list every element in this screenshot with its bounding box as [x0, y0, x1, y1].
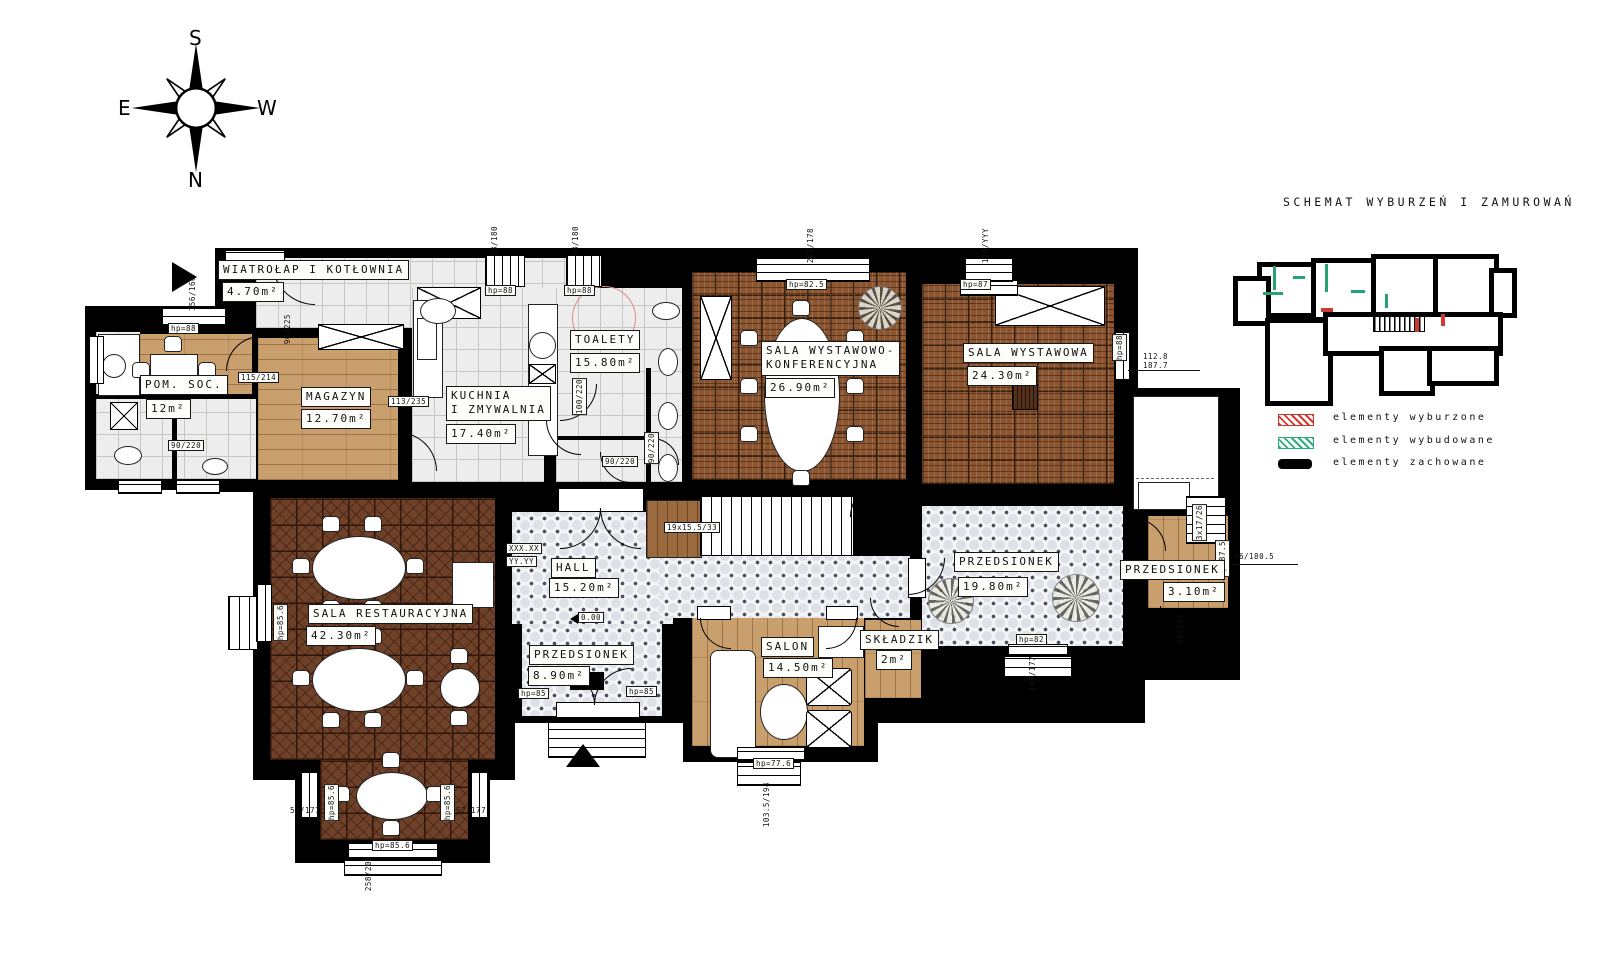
hp-label: hp=85.6 [372, 840, 413, 851]
room-label-przedsionek-310: PRZEDSIONEK [1120, 560, 1225, 580]
door-dim: 90/220 [168, 440, 204, 451]
chair [382, 752, 400, 768]
door-dim: 90/220 [602, 456, 638, 467]
dim-label: 52/177 [290, 806, 320, 815]
dim-label: 98/180 [571, 226, 580, 256]
area-label-magazyn: 12.70m² [301, 409, 371, 429]
dim-label: 98/180 [490, 226, 499, 256]
hp-label: hp=82 [1016, 634, 1047, 645]
compass-east: E [118, 96, 131, 120]
room-label-toalety: TOALETY [570, 330, 640, 350]
mini-green-mark [1325, 264, 1328, 292]
shower [110, 402, 138, 430]
chair [164, 336, 182, 352]
mini-green-mark [1293, 276, 1305, 279]
area-label-konferencyjna: 26.90m² [765, 378, 835, 398]
dining-table [312, 648, 406, 712]
entrance-arrow-icon [566, 744, 600, 767]
chair [740, 426, 758, 442]
chair [364, 516, 382, 532]
hp-label: hp=88 [564, 285, 595, 296]
door-dim: 113/235 [388, 396, 429, 407]
stove [529, 332, 556, 359]
room-label-kuchnia: KUCHNIAI ZMYWALNIA [446, 386, 551, 421]
area-label-toalety: 15.80m² [570, 353, 640, 373]
toilet [658, 402, 678, 430]
toilet [114, 446, 142, 465]
compass-west: W [257, 96, 277, 120]
legend-label-wybudowane: elementy wybudowane [1333, 435, 1495, 446]
dim-label: 187.7 [1143, 361, 1168, 370]
buffet-cabinet [452, 562, 494, 608]
area-label-pom-soc: 12m² [146, 399, 191, 419]
chair [292, 558, 310, 574]
chair [740, 378, 758, 394]
dim-label: 156/166 [188, 276, 197, 311]
kitchen-sink [417, 318, 437, 360]
mini-green-mark [1263, 292, 1283, 295]
boiler [420, 298, 456, 324]
area-label-hall: 15.20m² [549, 578, 619, 598]
hp-label: hp=85.6 [324, 784, 339, 821]
mini-room [1427, 346, 1499, 386]
stair-label: 3x17/26 [1192, 504, 1207, 541]
stair-label: 19x15.5/33 [664, 522, 720, 533]
chair [322, 712, 340, 728]
door-dim: 100/220 [572, 378, 587, 415]
main-staircase [700, 496, 854, 556]
plant [858, 286, 902, 330]
area-label-restauracyjna: 42.30m² [306, 626, 376, 646]
legend-label-wyburzone: elementy wyburzone [1333, 412, 1486, 423]
east-bench [1138, 482, 1190, 510]
area-label-przedsionek-1980: 19.80m² [958, 577, 1028, 597]
area-label-wiatrolap: 4.70m² [222, 282, 284, 302]
hp-label: hp=85.6 [440, 784, 455, 821]
mini-red-mark [1441, 314, 1445, 326]
sofa [710, 650, 756, 758]
dim-label: 258/208 [364, 856, 373, 891]
hp-label: hp=88 [168, 323, 199, 334]
legend-label-zachowane: elementy zachowane [1333, 457, 1486, 468]
toilet [202, 458, 228, 475]
dim-label: 112.8 [1143, 352, 1168, 361]
entry-steps-garden [1004, 656, 1072, 678]
room-label-przedsionek-890: PRZEDSIONEK [529, 645, 634, 665]
storage-crate [318, 324, 404, 350]
mini-red-mark [1415, 318, 1419, 332]
room-label-magazyn: MAGAZYN [301, 387, 371, 407]
bay-table [356, 772, 428, 820]
window [1008, 644, 1068, 656]
area-label-skladzik: 2m² [876, 650, 912, 670]
placeholder-dim: XXX.XX [506, 543, 542, 554]
chair [792, 470, 810, 486]
chair [450, 710, 468, 726]
hp-label: hp=88 [1112, 334, 1127, 361]
room-label-skladzik: SKŁADZIK [860, 630, 939, 650]
dim-label: 46/180.5 [1234, 552, 1274, 561]
dim-label: 52/177 [456, 806, 486, 815]
sink [102, 354, 126, 378]
window [176, 480, 220, 494]
mini-green-mark [1273, 266, 1276, 290]
room-label-restauracyjna: SALA RESTAURACYJNA [308, 604, 473, 624]
room-label-pom-soc: POM. SOC. [140, 375, 228, 395]
hp-label: hp=82.5 [786, 279, 827, 290]
area-label-salon: 14.50m² [763, 658, 833, 678]
door-dim: 90/225 [283, 314, 292, 344]
door-dim: 80/202 [1176, 614, 1185, 644]
dim-label: 106/177 [1028, 656, 1037, 691]
schematic-mini-plan [1233, 252, 1529, 402]
appliance [529, 364, 556, 384]
room-label-salon: SALON [761, 637, 814, 657]
room-label-przedsionek-1980: PRZEDSIONEK [954, 552, 1059, 572]
partition [646, 368, 651, 482]
toilet [652, 302, 680, 320]
level-marker: 0.00 [578, 612, 604, 623]
dim-line [1228, 564, 1298, 565]
side-table [440, 668, 480, 708]
chair [792, 300, 810, 316]
mini-room [1489, 268, 1517, 318]
level-flag-icon [570, 614, 578, 624]
mini-green-mark [1385, 294, 1388, 308]
salon-table [760, 684, 808, 740]
schematic-title: SCHEMAT WYBURZEŃ I ZAMUROWAŃ [1283, 195, 1575, 209]
room-przedsionek-1980 [922, 506, 1123, 646]
entry-steps-bay [344, 860, 442, 876]
hp-label: hp=88 [485, 285, 516, 296]
floor-inlay [1012, 384, 1038, 410]
mini-red-mark [1321, 308, 1333, 312]
dashed-line [1136, 478, 1214, 479]
area-label-przedsionek-310: 3.10m² [1163, 582, 1225, 602]
compass-north: N [188, 168, 203, 192]
dim-line [1128, 370, 1200, 371]
area-label-kuchnia: 17.40m² [446, 424, 516, 444]
chair [740, 330, 758, 346]
window [566, 255, 602, 287]
compass-south: S [189, 26, 202, 50]
window [88, 336, 104, 384]
room-label-konferencyjna: SALA WYSTAWOWO-KONFERENCYJNA [761, 341, 900, 376]
chair [450, 648, 468, 664]
entry-steps-west [228, 596, 258, 650]
dim-label: 103.5/194 [762, 782, 771, 827]
legend-swatch-wybudowane-icon [1278, 437, 1314, 449]
chair [846, 378, 864, 394]
hp-label: hp=77.6 [753, 758, 794, 769]
chair [382, 820, 400, 836]
chair [406, 670, 424, 686]
chair [846, 426, 864, 442]
sink [658, 348, 678, 376]
mini-green-mark [1351, 290, 1365, 293]
hp-label: hp=85.6 [273, 604, 288, 641]
entrance-arrow-icon [1148, 654, 1182, 677]
floor-plan-page: S N E W [0, 0, 1600, 977]
room-label-wiatrolap: WIATROŁAP I KOTŁOWNIA [218, 260, 409, 280]
compass-rose-icon [130, 42, 262, 174]
display-cabinet [700, 296, 732, 380]
dim-label: 263/178 [806, 228, 815, 263]
chair [406, 558, 424, 574]
area-label-wystawowa: 24.30m² [967, 366, 1037, 386]
legend-swatch-zachowane-icon [1278, 459, 1312, 469]
chair [322, 516, 340, 532]
placeholder-dim: YY.YY [506, 556, 537, 567]
room-label-wystawowa: SALA WYSTAWOWA [963, 343, 1094, 363]
door-dim: 115/214 [238, 372, 279, 383]
window [256, 584, 272, 642]
door-dim: 90/220 [644, 432, 659, 464]
chair [292, 670, 310, 686]
legend-swatch-wyburzone-icon [1278, 414, 1314, 426]
plant [1052, 574, 1100, 622]
area-label-przedsionek-890: 8.90m² [528, 666, 590, 686]
room-label-hall: HALL [551, 558, 596, 578]
window [485, 255, 525, 287]
dim-label: 110/YYY [981, 228, 990, 263]
dining-table [312, 536, 406, 600]
hp-label: hp=87 [960, 279, 991, 290]
hp-label: hp=85 [518, 688, 549, 699]
armchair [806, 710, 852, 748]
window [118, 480, 162, 494]
chair [364, 712, 382, 728]
hp-label: hp=85 [626, 686, 657, 697]
